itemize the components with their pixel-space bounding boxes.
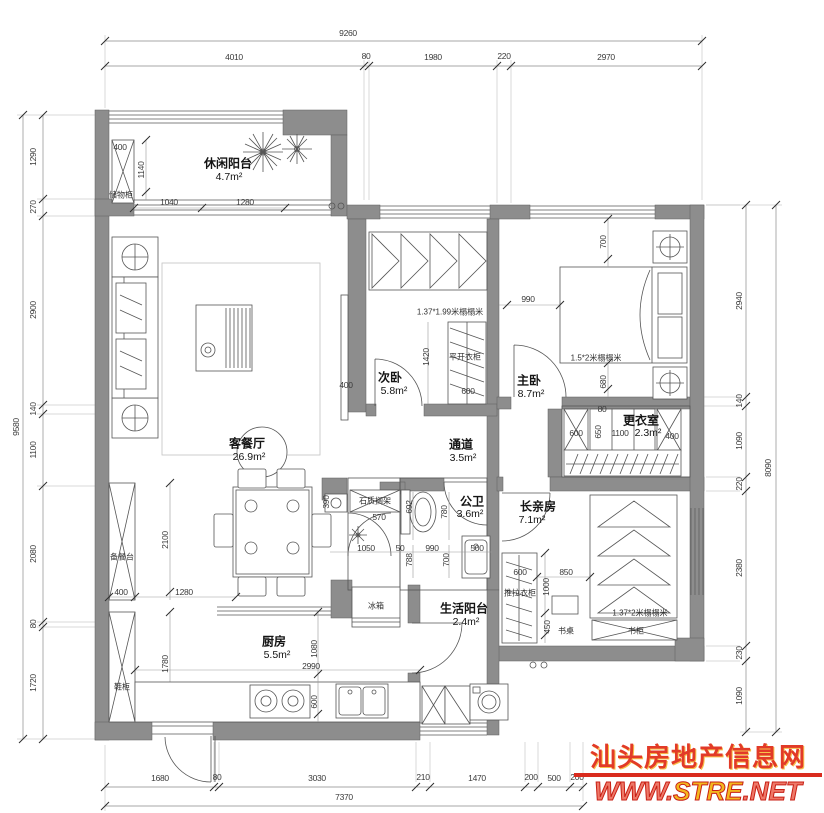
dim-bottom-total: 7370 (335, 792, 353, 802)
dim-right-seg: 230 (734, 646, 744, 659)
dim-tv-width: 400 (339, 380, 352, 390)
dim-bottom-seg: 210 (416, 772, 429, 782)
shoe-cabinet-label: 鞋柜 (114, 682, 130, 693)
dim-left-seg: 1290 (28, 148, 38, 166)
tatami-elder-label: 1.37*2米榻榻米 (612, 608, 667, 619)
dim-living-counter-len: 2100 (160, 531, 170, 549)
dim-elder-1000: 1000 (541, 578, 551, 596)
dim-right-seg: 140 (734, 394, 744, 407)
dim-dress-d: 400 (665, 431, 678, 441)
dim-master-left: 990 (521, 294, 534, 304)
room-area-utility-balcony: 2.4m² (453, 616, 480, 628)
dim-balcony-win-b: 1280 (236, 197, 254, 207)
watermark-url-prefix: WWW. (594, 776, 673, 806)
watermark-site-url: WWW.STRE.NET (574, 778, 822, 804)
watermark-site-name: 汕头房地产信息网 (574, 744, 822, 777)
watermark-url-suffix: .NET (743, 776, 802, 806)
room-area-dressing-room: 2.3m² (635, 427, 662, 439)
dim-living-shoe-len: 1780 (160, 655, 170, 673)
dim-balcony-depth: 1140 (136, 161, 146, 178)
dim-kitchen-1080: 1080 (309, 640, 319, 658)
dim-top-seg: 1980 (424, 52, 442, 62)
room-name-kitchen: 厨房 (262, 633, 286, 650)
room-area-corridor: 3.5m² (450, 452, 477, 464)
tatami-second-label: 1.37*1.99米榻榻米 (417, 307, 483, 318)
dim-living-wall: 1280 (175, 587, 193, 597)
dim-left-seg: 140 (28, 402, 38, 415)
dim-master-bottom: 680 (598, 375, 608, 388)
dim-living-counter-width: 400 (114, 587, 127, 597)
room-area-second-bedroom: 5.8m² (381, 385, 408, 397)
dim-kitchen-2990: 2990 (302, 661, 320, 671)
dim-bottom-seg: 1680 (151, 773, 169, 783)
dim-bath-788: 788 (404, 553, 414, 566)
serving-counter-label: 备餐台 (110, 552, 134, 563)
dim-right-seg: 1090 (734, 432, 744, 450)
dim-balcony-win-a: 1040 (160, 197, 178, 207)
room-name-leisure-balcony: 休闲阳台 (204, 155, 252, 172)
dim-bath-700: 700 (441, 553, 451, 566)
floorplan-canvas: 9260 4010 80 1980 220 2970 9580 1290 270… (0, 0, 824, 813)
bookcase-label: 书柜 (628, 626, 644, 637)
room-area-elder-room: 7.1m² (519, 514, 546, 526)
dim-dress-c: 1100 (611, 428, 628, 438)
dim-left-total: 9580 (11, 418, 21, 436)
dim-bath-390: 390 (321, 495, 331, 508)
dim-bath-1050: 1050 (357, 543, 375, 553)
watermark: 汕头房地产信息网 WWW.STRE.NET (574, 744, 822, 804)
dim-balcony-cabinet: 400 (113, 142, 126, 152)
dim-bottom-seg: 3030 (308, 773, 326, 783)
dim-bath-50: 50 (396, 543, 405, 553)
room-name-second-bedroom: 次卧 (378, 369, 402, 386)
dim-left-seg: 1720 (28, 674, 38, 692)
dim-top-total: 9260 (339, 28, 357, 38)
room-area-master-bedroom: 8.7m² (518, 388, 545, 400)
dim-bottom-seg: 80 (213, 772, 222, 782)
dim-bath-990: 990 (425, 543, 438, 553)
dim-bath-500: 500 (470, 543, 483, 553)
room-area-leisure-balcony: 4.7m² (216, 171, 243, 183)
dim-right-seg: 1090 (734, 687, 744, 705)
room-area-bathroom: 3.6m² (457, 508, 484, 520)
dim-bottom-seg: 1470 (468, 773, 486, 783)
room-name-master-bedroom: 主卧 (517, 372, 541, 389)
dim-top-seg: 4010 (225, 52, 243, 62)
room-name-dressing-room: 更衣室 (623, 412, 659, 429)
dim-elder-850: 850 (559, 567, 572, 577)
dim-bath-570: 570 (372, 512, 385, 522)
sliding-wardrobe-label: 推拉衣柜 (504, 588, 536, 599)
dim-right-seg: 220 (734, 477, 744, 490)
dim-bath-692: 692 (404, 500, 414, 513)
dim-left-seg: 2900 (28, 301, 38, 319)
dim-left-seg: 80 (28, 620, 38, 629)
dim-elder-450: 450 (542, 620, 552, 633)
stone-shelf-label: 石质搁架 (359, 496, 391, 507)
fridge-label: 冰箱 (368, 601, 384, 612)
dim-bottom-seg: 500 (547, 773, 560, 783)
dim-right-seg: 2940 (734, 292, 744, 310)
room-name-elder-room: 长亲房 (520, 498, 556, 515)
dim-top-seg: 220 (497, 51, 510, 61)
desk-label: 书桌 (558, 626, 574, 637)
dim-dress-b: 650 (593, 425, 603, 438)
dim-bed2-closet-depth: 1420 (421, 348, 431, 366)
dim-top-seg: 2970 (597, 52, 615, 62)
room-area-kitchen: 5.5m² (264, 649, 291, 661)
room-name-utility-balcony: 生活阳台 (440, 600, 488, 617)
hinged-wardrobe-label: 平开衣柜 (449, 352, 481, 363)
room-area-living-dining: 26.9m² (233, 451, 266, 463)
room-name-living-dining: 客餐厅 (229, 435, 265, 452)
dim-left-seg: 270 (28, 200, 38, 213)
dim-left-seg: 2080 (28, 545, 38, 563)
dim-bed2-closet-width: 600 (461, 386, 474, 396)
dim-right-total: 8090 (763, 459, 773, 477)
dim-kitchen-600: 600 (309, 695, 319, 708)
storage-cabinet-label: 储物柜 (109, 190, 133, 201)
tatami-master-label: 1.5*2米榻榻米 (571, 353, 622, 364)
room-name-bathroom: 公卫 (460, 493, 484, 510)
dim-top-seg: 80 (362, 51, 371, 61)
dim-elder-600: 600 (513, 567, 526, 577)
dim-bath-780: 780 (439, 505, 449, 518)
dim-dress-a: 600 (569, 428, 582, 438)
dim-right-seg: 2380 (734, 559, 744, 577)
dim-master-top: 700 (598, 235, 608, 248)
dim-bottom-seg: 200 (524, 772, 537, 782)
dim-wall-gap: 80 (598, 404, 607, 414)
dim-left-seg: 1100 (28, 441, 38, 458)
watermark-url-brand: STRE (673, 776, 742, 806)
room-name-corridor: 通道 (449, 436, 473, 453)
